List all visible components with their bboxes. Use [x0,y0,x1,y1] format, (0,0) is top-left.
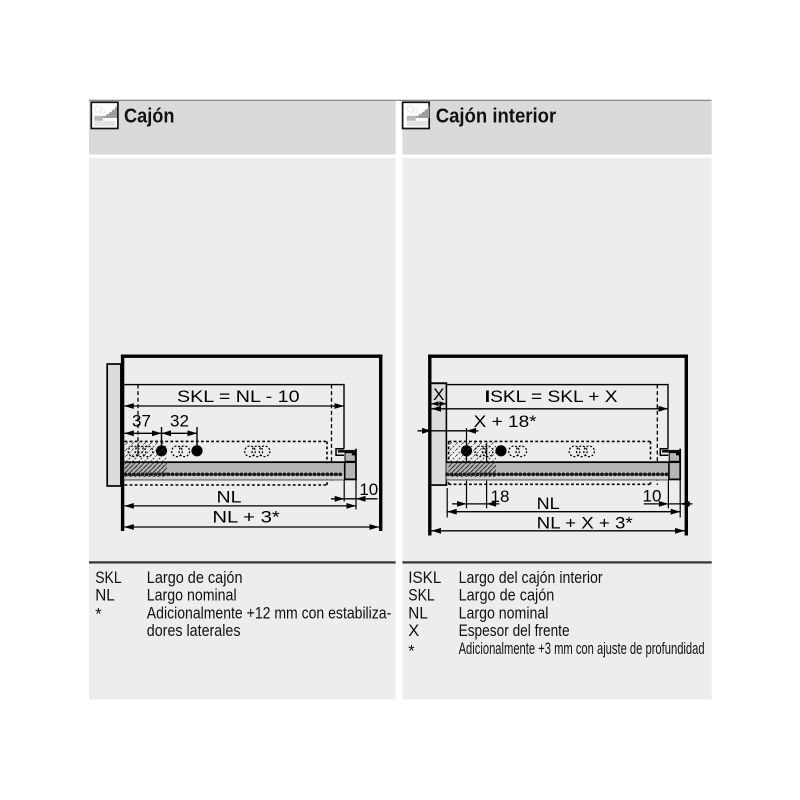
svg-text:NL: NL [95,587,115,605]
svg-text:dores laterales: dores laterales [147,622,241,640]
svg-text:X: X [408,622,419,640]
svg-text:Largo nominal: Largo nominal [459,604,549,622]
svg-text:SKL = NL - 10: SKL = NL - 10 [177,387,300,406]
svg-text:Adicionalmente +3 mm con ajust: Adicionalmente +3 mm con ajuste de profu… [459,640,705,658]
svg-text:Cajón: Cajón [124,106,175,128]
svg-text:*: * [95,606,102,624]
svg-text:NL: NL [217,487,242,506]
svg-text:Largo de cajón: Largo de cajón [147,569,243,587]
svg-text:SKL: SKL [408,587,434,605]
svg-text:ISKL: ISKL [408,569,441,587]
svg-text:*: * [408,643,415,661]
svg-text:Adicionalmente +12 mm con esta: Adicionalmente +12 mm con estabiliza- [147,604,391,622]
svg-text:10: 10 [643,487,662,506]
svg-text:32: 32 [170,412,189,431]
svg-text:X + 18*: X + 18* [474,412,537,431]
svg-text:Espesor del frente: Espesor del frente [459,622,570,640]
svg-text:ISKL = SKL + X: ISKL = SKL + X [485,387,618,406]
svg-text:Largo de cajón: Largo de cajón [459,587,555,605]
svg-text:NL + X + 3*: NL + X + 3* [537,514,633,533]
svg-text:10: 10 [359,480,378,499]
svg-text:Cajón interior: Cajón interior [436,106,557,128]
svg-text:37: 37 [132,412,151,431]
svg-text:Largo nominal: Largo nominal [147,587,237,605]
svg-text:Largo del cajón interior: Largo del cajón interior [459,569,603,587]
svg-text:X: X [433,385,444,404]
svg-text:NL: NL [537,494,560,513]
svg-text:NL + 3*: NL + 3* [212,507,280,526]
svg-text:NL: NL [408,604,428,622]
svg-text:SKL: SKL [95,569,121,587]
